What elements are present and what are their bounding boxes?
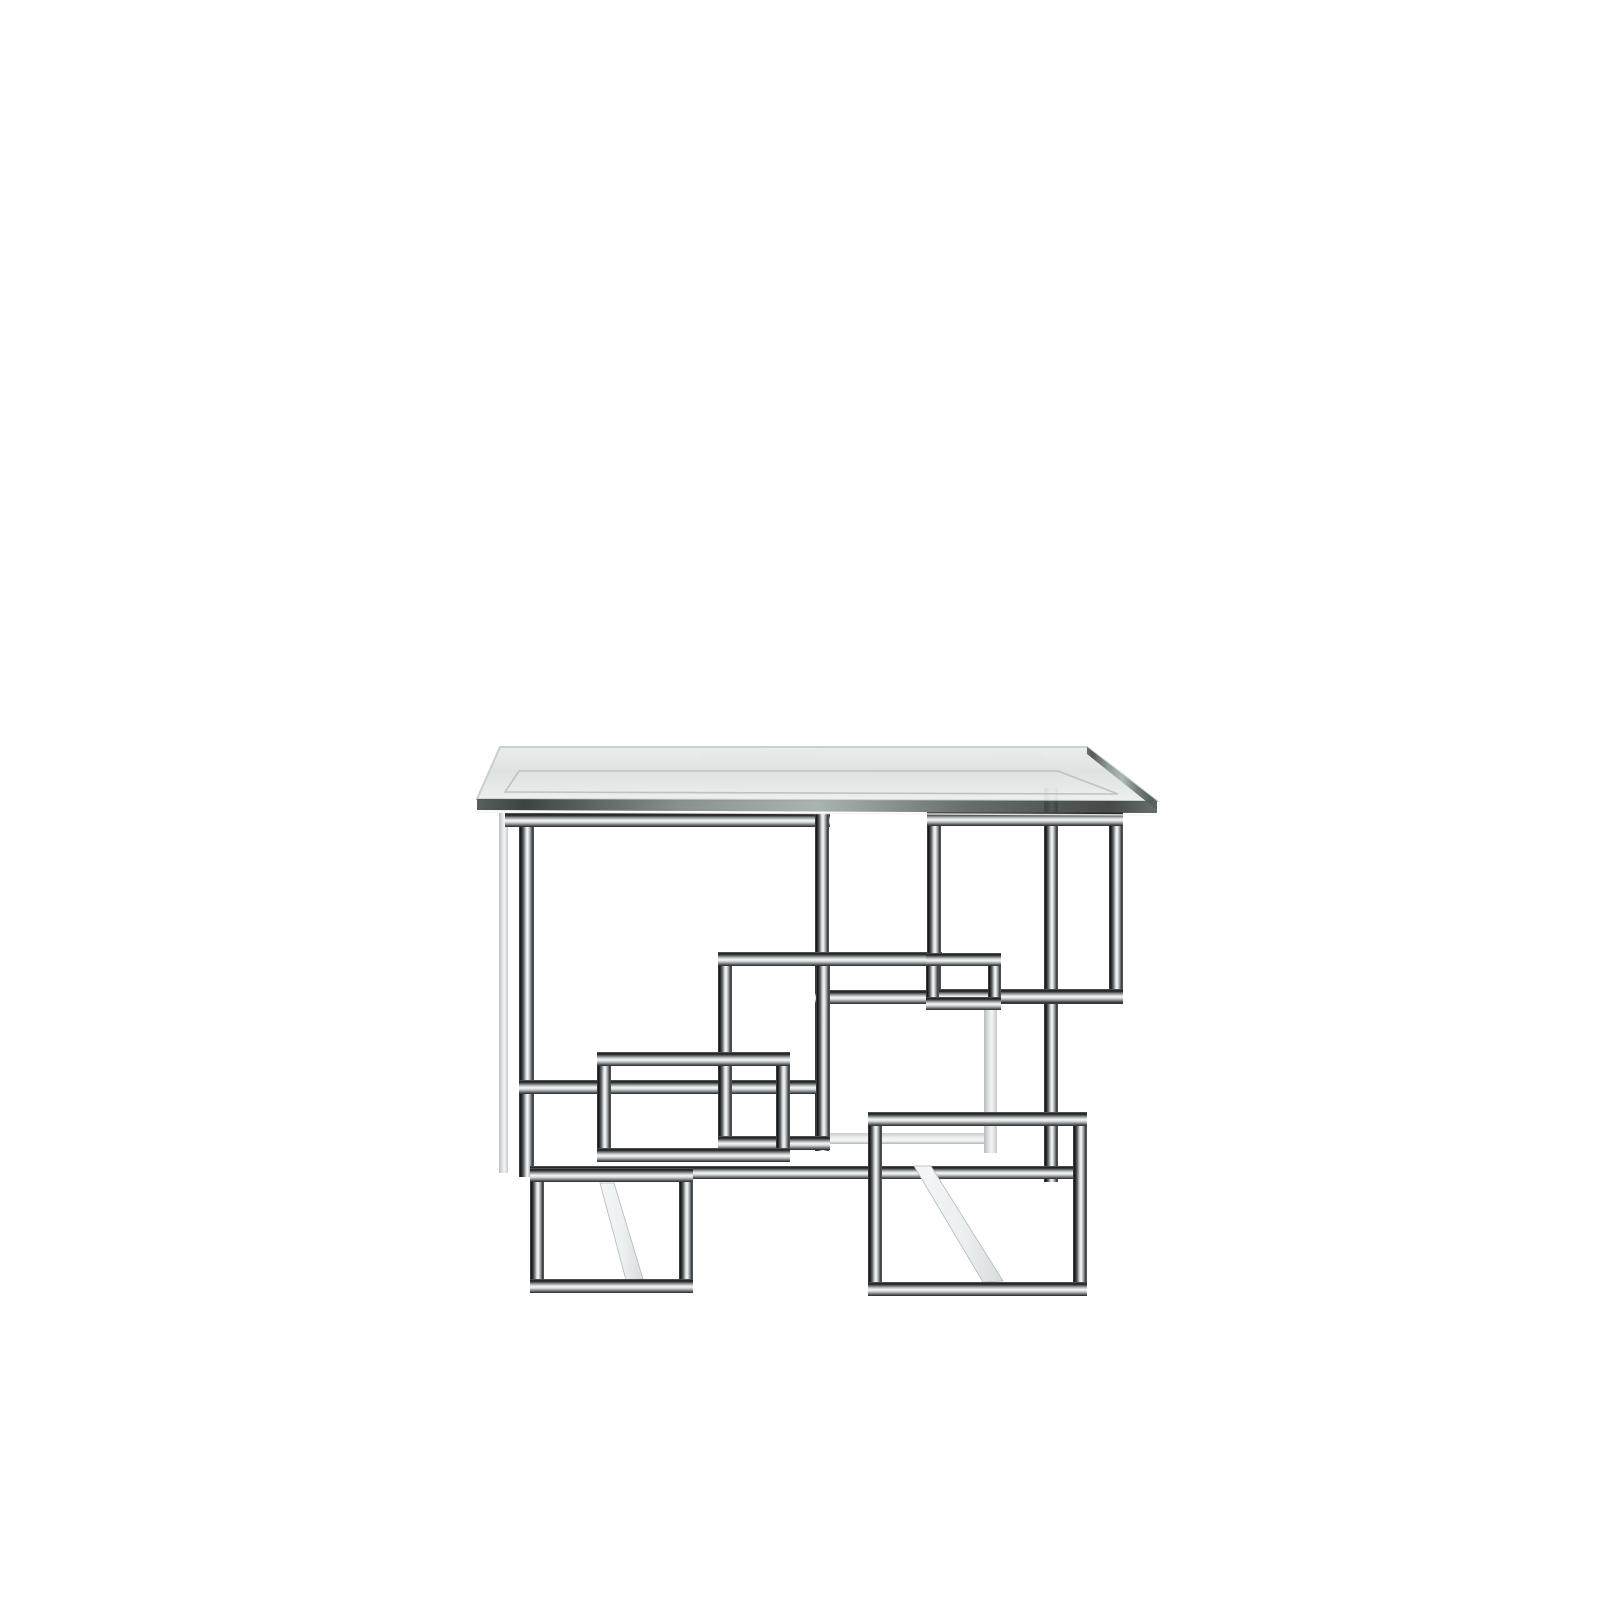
glass-top [477, 747, 1157, 815]
product-photo: Product photograph of a modern square si… [0, 0, 1600, 1600]
side-table-illustration: Product photograph of a modern square si… [0, 0, 1600, 1600]
rear-vertical-light [984, 1008, 997, 1153]
front-left-leg [519, 813, 534, 1177]
rear-left-leg [499, 813, 508, 1173]
rear-rail-light [826, 1133, 992, 1144]
top-rail-left [505, 813, 830, 827]
